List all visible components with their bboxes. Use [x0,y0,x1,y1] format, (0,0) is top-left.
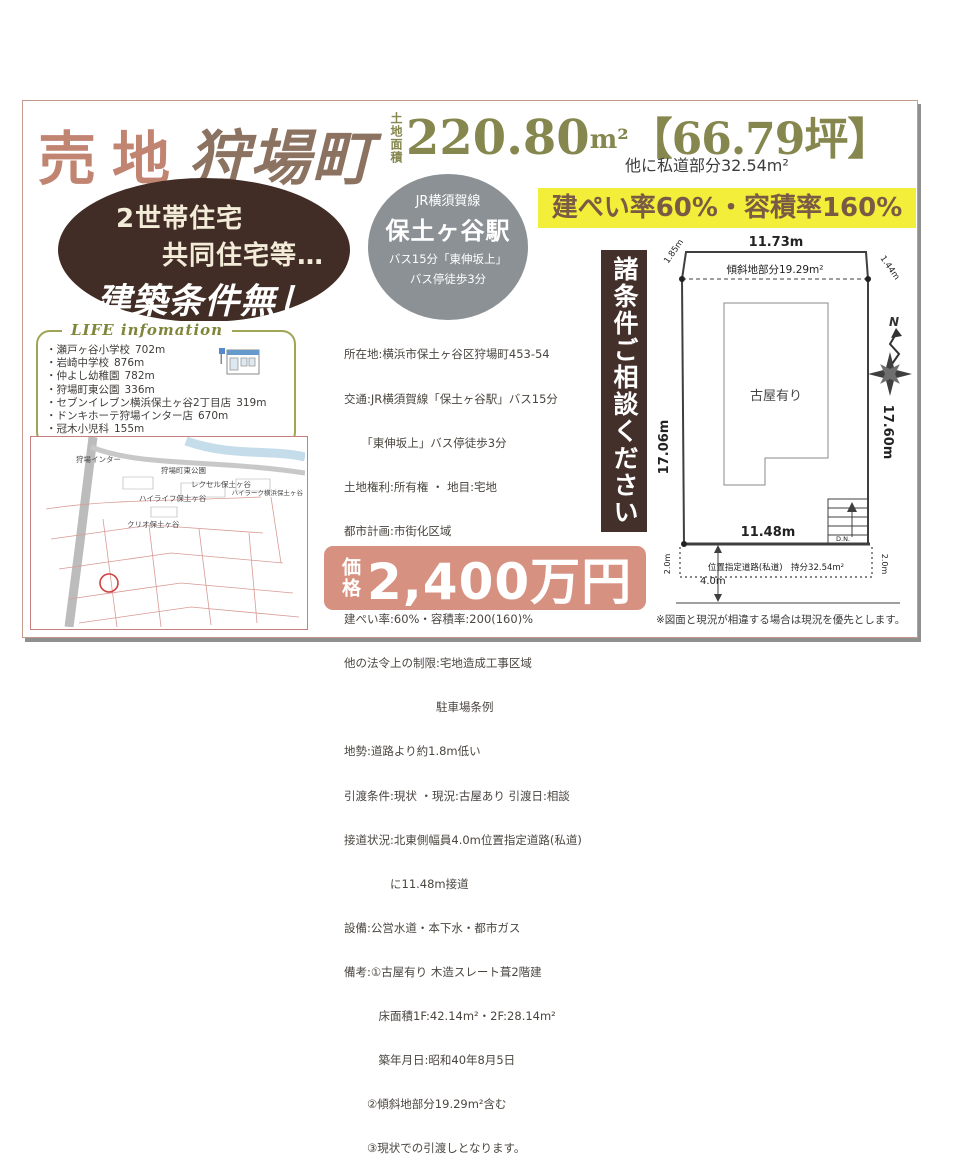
bus-access: バス15分「東伸坂上」 [368,251,528,267]
map-label: クリオ保土ヶ谷 [127,519,180,529]
detail-line: 備考:①古屋有り 木造スレート葺2階建 [344,965,582,980]
detail-line: 設備:公営水道・本下水・都市ガス [344,921,582,936]
facility-distance: 670m [198,410,228,422]
dim-left-side: 17.06m [657,420,672,475]
private-road-note: 他に私道部分32.54m² [625,152,789,176]
detail-line: 築年月日:昭和40年8月5日 [344,1053,582,1068]
building-label: 古屋有り [750,389,802,404]
detail-line: 床面積1F:42.14m²・2F:28.14m² [344,1009,582,1024]
list-item: ・狩場町東公園336m [46,384,246,397]
detail-line: 交通:JR横須賀線「保土ヶ谷駅」バス15分 [344,392,582,407]
list-item: ・ドンキホーテ狩場インター店670m [46,410,246,423]
dim-slant-right: 1.44m [878,254,902,282]
area-map: 狩場インター 狩場町東公園 レクセル保土ヶ谷 ハイライフ保土ヶ谷 ハイラーク横浜… [30,436,308,630]
map-label: 狩場町東公園 [161,465,206,475]
price-banner: 価格 2,400万円 [324,546,646,610]
facility-distance: 319m [236,397,266,409]
oval-line3: 建築条件無し [58,273,350,324]
slope-area-label: 傾斜地部分19.29m² [727,263,824,276]
dim-right-side: 17.60m [880,405,895,460]
facility-name: ・岩崎中学校 [46,357,109,369]
dim-road-offset-right: 2.0m [880,554,889,575]
site-plan-diagram: 11.73m 1.85m 1.44m 傾斜地部分19.29m² 17.06m 1… [656,232,916,610]
detail-line: 都市計画:市街化区域 [344,524,582,539]
compass-north-icon: N [866,312,920,400]
rail-line: JR横須賀線 [368,190,528,209]
facility-distance: 876m [114,357,144,369]
map-label: ハイライフ保土ヶ谷 [139,493,207,503]
detail-line: 接道状況:北東側幅員4.0m位置指定道路(私道) [344,833,582,848]
list-item: ・岩崎中学校876m [46,357,246,370]
facility-name: ・セブンイレブン横浜保土ヶ谷2丁目店 [46,397,231,409]
map-location-marker [100,574,118,592]
list-item: ・瀬戸ヶ谷小学校702m [46,344,246,357]
life-info-list: ・瀬戸ヶ谷小学校702m ・岩崎中学校876m ・仲よし幼稚園782m ・狩場町… [46,344,246,436]
ratio-banner: 建ぺい率60%・容積率160% [538,188,916,228]
dim-bottom-width: 11.48m [741,525,796,540]
map-label: レクセル保土ヶ谷 [191,479,251,489]
facility-name: ・冠木小児科 [46,423,109,435]
life-info-title: LIFE infomation [62,321,232,339]
facility-distance: 336m [125,384,155,396]
facility-distance: 782m [125,370,155,382]
detail-line: 土地権利:所有権 ・ 地目:宅地 [344,480,582,495]
boundary-point [679,276,685,282]
list-item: ・冠木小児科155m [46,423,246,436]
land-area-unit: m² [590,125,629,155]
compass-n-label: N [889,315,899,329]
map-label: ハイラーク横浜保土ヶ谷 [232,488,304,497]
detail-line: 他の法令上の制限:宅地造成工事区域 [344,656,582,671]
facility-name: ・仲よし幼稚園 [46,370,120,382]
diagram-footnote: ※図面と現況が相違する場合は現況を優先とします。 [656,612,905,627]
land-area-label: 土地面積 [388,112,405,164]
property-details: 所在地:横浜市保土ヶ谷区狩場町453-54 交通:JR横須賀線「保土ヶ谷駅」バス… [344,318,582,1171]
facility-name: ・ドンキホーテ狩場インター店 [46,410,193,422]
price-label: 価格 [340,557,359,599]
station-circle: JR横須賀線 保土ヶ谷駅 バス15分「東伸坂上」 バス停徒歩3分 [368,174,528,320]
detail-line: 駐車場条例 [344,700,582,715]
dim-road-offset-left: 2.0m [663,554,672,575]
list-item: ・セブンイレブン横浜保土ヶ谷2丁目店319m [46,397,246,410]
road-label: 位置指定道路(私道) 持分32.54m² [708,562,844,573]
flyer-page: { "header": { "sale_type": "売地", "town":… [0,0,960,720]
land-area-number: 220.80 [406,110,590,166]
station-name: 保土ヶ谷駅 [368,211,528,246]
detail-line: 所在地:横浜市保土ヶ谷区狩場町453-54 [344,347,582,362]
road-width-label: 4.0m [700,576,726,587]
compass-arrow-head [891,328,902,338]
price-value: 2,400万円 [367,542,632,614]
arrow-head-up [714,545,722,553]
map-river [186,441,305,457]
detail-line: ②傾斜地部分19.29m²含む [344,1097,582,1112]
detail-line: 建ぺい率:60%・容積率:200(160)% [344,612,582,627]
bus-stop-walk: バス停徒歩3分 [368,271,528,287]
detail-line: 「東伸坂上」バス停徒歩3分 [344,436,582,451]
stairs-up-arrow [847,502,857,512]
map-drawing: 狩場インター 狩場町東公園 レクセル保土ヶ谷 ハイライフ保土ヶ谷 ハイラーク横浜… [31,437,305,627]
facility-distance: 702m [135,344,165,356]
facility-distance: 155m [114,423,144,435]
oval-line2: 共同住宅等… [162,235,350,272]
detail-line: ③現状での引渡しとなります。 [344,1141,582,1156]
no-condition-oval: 2世帯住宅 共同住宅等… 建築条件無し [58,178,350,322]
convenience-store-icon [218,346,260,376]
detail-line: に11.48m接道 [344,877,582,892]
consult-banner-text: 諸条件ご相談ください [606,256,642,526]
facility-name: ・狩場町東公園 [46,384,120,396]
boundary-point [865,276,871,282]
facility-name: ・瀬戸ヶ谷小学校 [46,344,130,356]
dim-slant-left: 1.85m [662,238,686,266]
consult-banner: 諸条件ご相談ください [601,250,647,532]
stairs-label: D.N. [836,535,850,543]
dim-top-width: 11.73m [749,235,804,250]
list-item: ・仲よし幼稚園782m [46,370,246,383]
detail-line: 地勢:道路より約1.8m低い [344,744,582,759]
map-label: 狩場インター [76,454,121,464]
detail-line: 引渡条件:現状 ・現況:古屋あり 引渡日:相談 [344,789,582,804]
boundary-point [681,541,687,547]
arrow-head-down [714,594,722,602]
oval-line1: 2世帯住宅 [116,198,350,235]
